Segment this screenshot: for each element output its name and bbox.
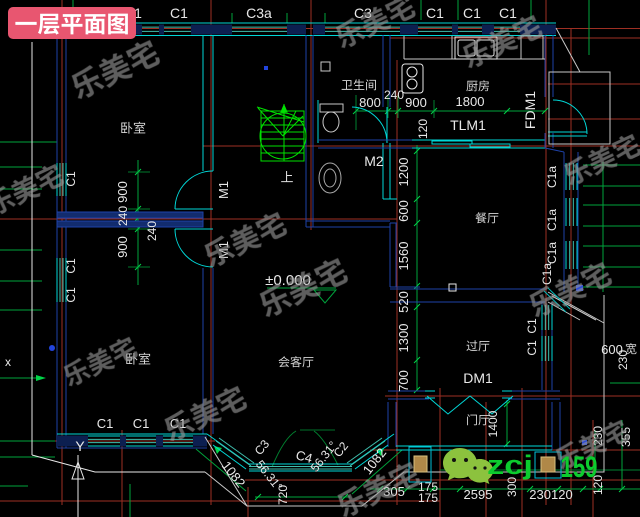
svg-text:C1: C1 bbox=[463, 5, 481, 21]
svg-text:175: 175 bbox=[418, 491, 438, 505]
svg-text:800: 800 bbox=[359, 95, 381, 110]
svg-text:C1: C1 bbox=[525, 318, 539, 334]
svg-text:C1: C1 bbox=[525, 340, 539, 356]
svg-text:1400: 1400 bbox=[486, 410, 500, 437]
svg-text:C1: C1 bbox=[170, 5, 188, 21]
svg-text:900: 900 bbox=[115, 236, 130, 258]
svg-text:C1: C1 bbox=[426, 5, 444, 21]
svg-text:520: 520 bbox=[396, 291, 411, 313]
svg-text:C1: C1 bbox=[64, 287, 78, 303]
svg-text:C1a: C1a bbox=[545, 166, 559, 188]
svg-text:900: 900 bbox=[115, 181, 130, 203]
svg-text:240: 240 bbox=[145, 221, 159, 241]
svg-text:159: 159 bbox=[561, 451, 598, 484]
svg-text:1300: 1300 bbox=[396, 324, 411, 353]
svg-text:C1: C1 bbox=[64, 171, 78, 187]
svg-text:C1a: C1a bbox=[540, 263, 554, 285]
svg-text:C1a: C1a bbox=[545, 209, 559, 231]
svg-text:x: x bbox=[5, 355, 11, 369]
svg-text:120: 120 bbox=[416, 119, 430, 139]
svg-text:C3a: C3a bbox=[246, 5, 272, 21]
svg-text:1560: 1560 bbox=[396, 242, 411, 271]
svg-text:600: 600 bbox=[601, 342, 623, 357]
svg-text:C1: C1 bbox=[64, 258, 78, 274]
svg-text:1200: 1200 bbox=[396, 158, 411, 187]
svg-text:700: 700 bbox=[396, 370, 411, 392]
svg-text:zcj: zcj bbox=[487, 450, 533, 480]
svg-text:240: 240 bbox=[116, 206, 130, 226]
svg-text:1800: 1800 bbox=[456, 94, 485, 109]
svg-text:C1: C1 bbox=[499, 5, 517, 21]
svg-text:DM1: DM1 bbox=[463, 370, 493, 386]
svg-text:C1: C1 bbox=[97, 416, 114, 431]
svg-text:900: 900 bbox=[405, 95, 427, 110]
svg-text:230120: 230120 bbox=[529, 487, 572, 502]
svg-text:C1: C1 bbox=[133, 416, 150, 431]
svg-text:600: 600 bbox=[396, 200, 411, 222]
svg-text:240: 240 bbox=[384, 88, 404, 102]
svg-text:M1: M1 bbox=[216, 181, 231, 199]
svg-text:2595: 2595 bbox=[464, 487, 493, 502]
svg-text:TLM1: TLM1 bbox=[450, 117, 486, 133]
svg-text:M2: M2 bbox=[364, 153, 384, 169]
svg-text:C1a: C1a bbox=[545, 242, 559, 264]
svg-text:Y: Y bbox=[75, 438, 85, 454]
svg-text:FDM1: FDM1 bbox=[522, 91, 538, 129]
svg-text:720: 720 bbox=[276, 485, 290, 505]
